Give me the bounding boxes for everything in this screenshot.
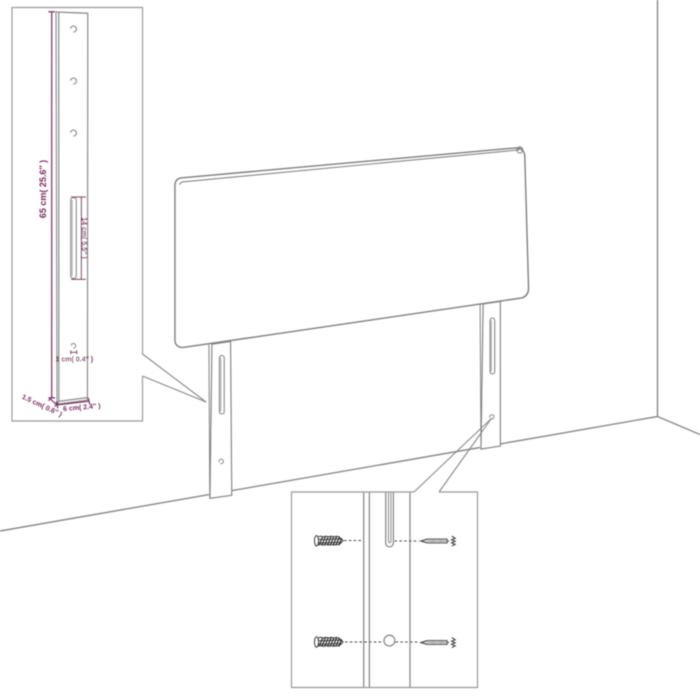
svg-text:65 cm( 25.6″ ): 65 cm( 25.6″ ): [38, 160, 48, 218]
svg-text:1 cm( 0.4″ ): 1 cm( 0.4″ ): [56, 357, 94, 364]
svg-text:14 cm( 5.5″ ): 14 cm( 5.5″ ): [80, 217, 87, 258]
